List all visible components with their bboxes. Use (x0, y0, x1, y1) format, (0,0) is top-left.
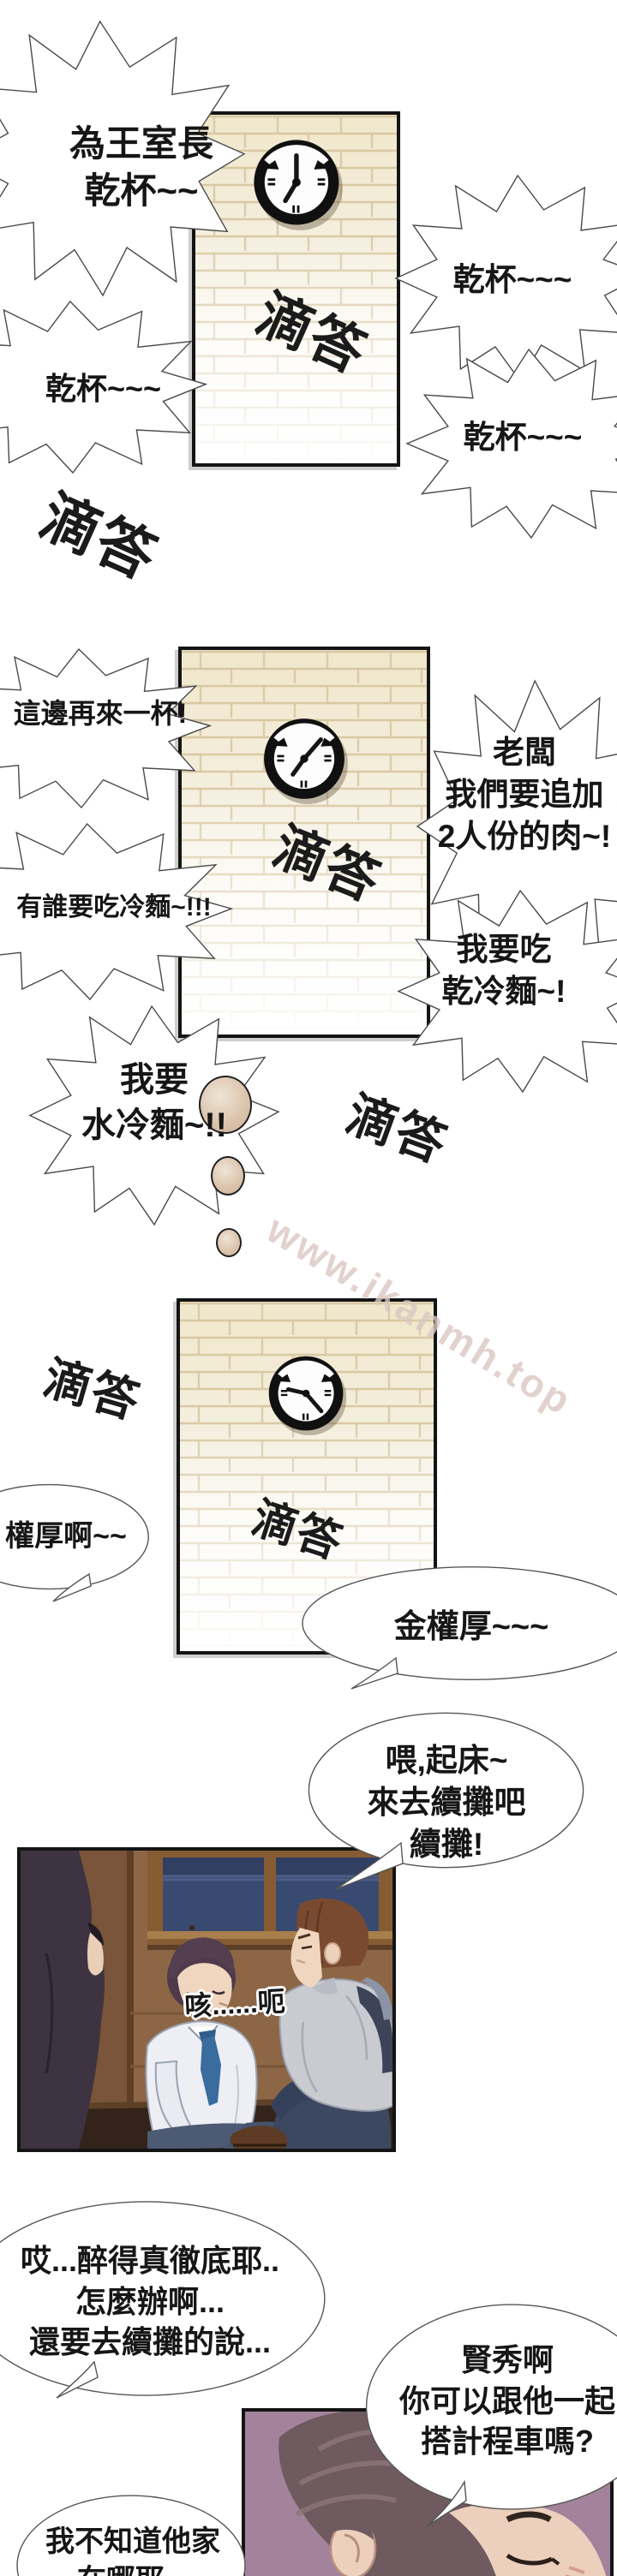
bubble-text-hyunsoo-taxi: 賢秀啊 你可以跟他一起 搭計程車嗎? (379, 2340, 617, 2462)
bubble-tail (350, 1658, 398, 1690)
bubble-text-dont-know-home: 我不知道他家 在哪耶... (26, 2523, 240, 2576)
bubble-text-wake-up: 喂,起床~ 來去續攤吧 續攤! (330, 1740, 563, 1865)
bubble-text-cheers-3: 乾杯~~~ (420, 417, 617, 459)
bubble-text-toast-leader: 為王室長 乾杯~~ (17, 120, 266, 215)
bubble-text-dry-cold-noodles: 我要吃 乾冷麵~! (410, 929, 598, 1013)
bubble-text-kim-kwonhoo: 金權厚~~~ (343, 1606, 600, 1649)
sfx-ticktock-5: 滴答 (37, 1339, 150, 1432)
wall-clock-icon (265, 1352, 349, 1436)
bubble-text-boss-order: 老闆 我們要追加 2人份的肉~! (422, 732, 617, 857)
bubble-text-another-round: 這邊再來一杯! (2, 695, 199, 731)
bubble-text-water-cold-noodles: 我要 水冷麵~!! (47, 1058, 261, 1148)
bubble-tail (422, 2480, 468, 2528)
thought-bubble-dot-2 (211, 1156, 245, 1196)
bubble-text-kwonhoo: 權厚啊~~ (0, 1518, 139, 1556)
bubble-text-so-drunk: 哎...醉得真徹底耶.. 怎麼辦啊... 還要去續攤的說... (0, 2240, 308, 2363)
bubble-text-cheers-1: 乾杯~~~ (410, 259, 615, 301)
bubble-tail (51, 1574, 91, 1603)
bubble-text-cheers-2: 乾杯~~~ (7, 368, 200, 409)
sfx-ticktock-2: 滴答 (29, 469, 173, 595)
bubble-tail (53, 2360, 98, 2400)
wall-clock-icon (260, 714, 350, 805)
panel-bar-scene: 咳......呃 (17, 1847, 396, 2152)
comic-page: 滴答 滴答 為王室長 乾杯~~ 乾杯~~~ 乾杯~~~ 乾杯~~~ 滴答 這邊再… (0, 0, 617, 2576)
thought-bubble-dot-3 (216, 1228, 242, 1257)
bubble-text-who-cold-noodles: 有誰要吃冷麵~!!! (0, 891, 230, 925)
